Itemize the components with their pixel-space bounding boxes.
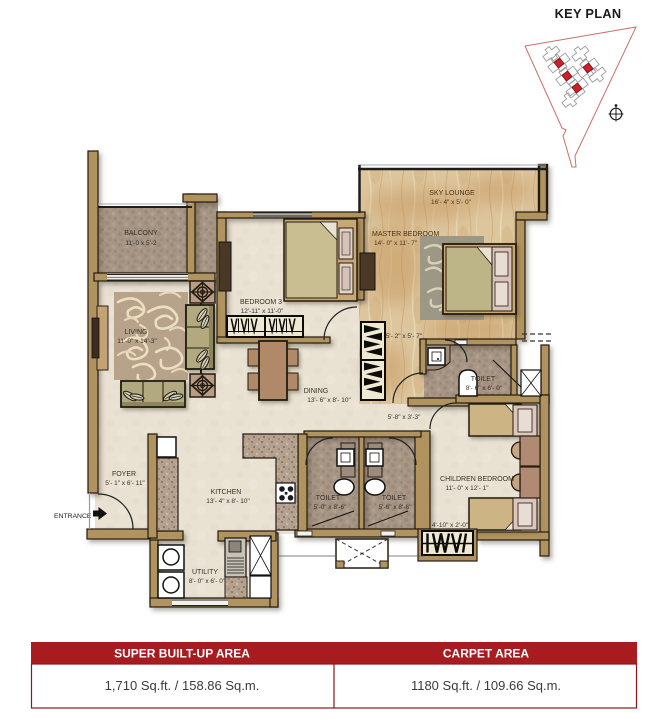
svg-text:TOILET: TOILET xyxy=(471,376,496,383)
svg-text:13'- 6" x 8'- 10": 13'- 6" x 8'- 10" xyxy=(307,397,351,404)
svg-text:5'-0" x 8'-6": 5'-0" x 8'-6" xyxy=(314,504,347,511)
svg-text:KITCHEN: KITCHEN xyxy=(211,489,242,496)
svg-text:CARPET AREA: CARPET AREA xyxy=(443,647,530,661)
svg-text:13'- 4" x 8'- 10": 13'- 4" x 8'- 10" xyxy=(206,498,250,505)
svg-text:8'- 0" x 6'- 0": 8'- 0" x 6'- 0" xyxy=(189,578,226,585)
svg-text:11'-0" x 14'-3": 11'-0" x 14'-3" xyxy=(117,338,157,345)
svg-text:5'-8" x 3'-3": 5'-8" x 3'-3" xyxy=(388,414,421,421)
svg-text:12'-11" x 11'-0": 12'-11" x 11'-0" xyxy=(241,308,284,315)
svg-text:5'-6" x 8'-6": 5'-6" x 8'-6" xyxy=(379,504,412,511)
svg-text:FOYER: FOYER xyxy=(112,471,136,478)
svg-text:KEY PLAN: KEY PLAN xyxy=(555,6,622,21)
svg-text:TOILET: TOILET xyxy=(382,495,407,502)
svg-text:TOILET: TOILET xyxy=(316,495,341,502)
svg-text:8'- 6" x 6'- 0": 8'- 6" x 6'- 0" xyxy=(466,385,503,392)
svg-text:1,710 Sq.ft. / 158.86 Sq.m.: 1,710 Sq.ft. / 158.86 Sq.m. xyxy=(105,678,260,693)
svg-text:LIVING: LIVING xyxy=(125,329,148,336)
svg-text:5'- 2" x 5'- 7": 5'- 2" x 5'- 7" xyxy=(386,333,423,340)
svg-text:BEDROOM 3: BEDROOM 3 xyxy=(240,299,282,306)
svg-text:4'-10" x 2'-0": 4'-10" x 2'-0" xyxy=(432,522,469,529)
svg-text:11'-0 x 5'-2: 11'-0 x 5'-2 xyxy=(125,240,157,247)
svg-text:5'- 1" x 6'- 11": 5'- 1" x 6'- 11" xyxy=(105,480,145,487)
svg-text:14'- 0" x 11'- 7": 14'- 0" x 11'- 7" xyxy=(374,240,418,247)
svg-text:SKY LOUNGE: SKY LOUNGE xyxy=(429,190,475,197)
svg-text:BALCONY: BALCONY xyxy=(124,230,158,237)
svg-text:1180 Sq.ft. / 109.66 Sq.m.: 1180 Sq.ft. / 109.66 Sq.m. xyxy=(411,678,561,693)
svg-text:ENTRANCE: ENTRANCE xyxy=(54,513,92,520)
svg-text:16'- 4" x 5'- 0": 16'- 4" x 5'- 0" xyxy=(431,199,472,206)
svg-text:DINING: DINING xyxy=(304,388,329,395)
svg-text:UTILITY: UTILITY xyxy=(192,569,218,576)
svg-text:11'- 0" x 12'- 1": 11'- 0" x 12'- 1" xyxy=(445,485,489,492)
svg-text:CHILDREN BEDROOM: CHILDREN BEDROOM xyxy=(440,476,514,483)
svg-text:SUPER BUILT-UP AREA: SUPER BUILT-UP AREA xyxy=(114,647,250,661)
